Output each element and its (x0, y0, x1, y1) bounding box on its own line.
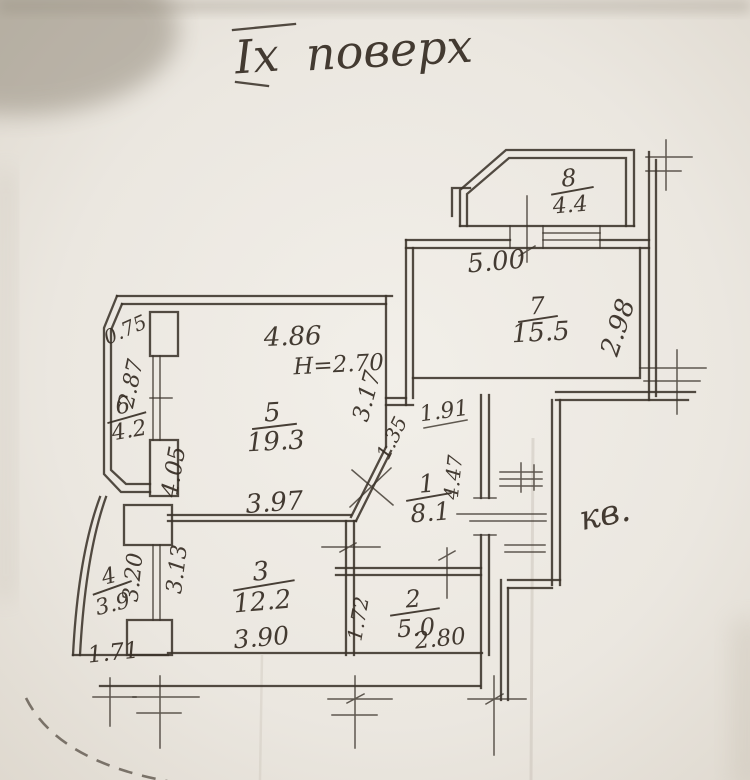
title-roman-numeral: Іх (232, 28, 281, 85)
room-number: 2 (403, 585, 421, 614)
room-area: 12.2 (232, 585, 292, 620)
room-number: 1 (418, 468, 436, 498)
room-number: 5 (263, 398, 281, 429)
dim-room5-bottom: 3.97 (245, 486, 305, 520)
room-area: 19.3 (246, 425, 305, 458)
title-word: поверх (305, 19, 474, 82)
room-number: 7 (529, 292, 546, 321)
dim-room1-right: 4.47 (439, 454, 468, 502)
dim-room3-bottom: 3.90 (232, 621, 290, 655)
room-area: 8.1 (409, 496, 451, 528)
room-area: 15.5 (511, 316, 570, 349)
dim-room7-top: 5.00 (466, 245, 526, 280)
scanned-floor-plan: Іх поверх (0, 0, 750, 780)
room-number: 8 (560, 163, 578, 192)
room-area: 4.4 (551, 192, 589, 220)
dim-room4-right: 3.20 (119, 552, 149, 603)
room-number: 3 (251, 556, 270, 587)
dim-room4-bottom: 1.71 (86, 637, 140, 668)
dim-room2-bottom: 2.80 (412, 623, 467, 654)
dim-room5-top: 4.86 (262, 321, 322, 353)
floor-plan-canvas: Іх поверх (0, 0, 750, 780)
